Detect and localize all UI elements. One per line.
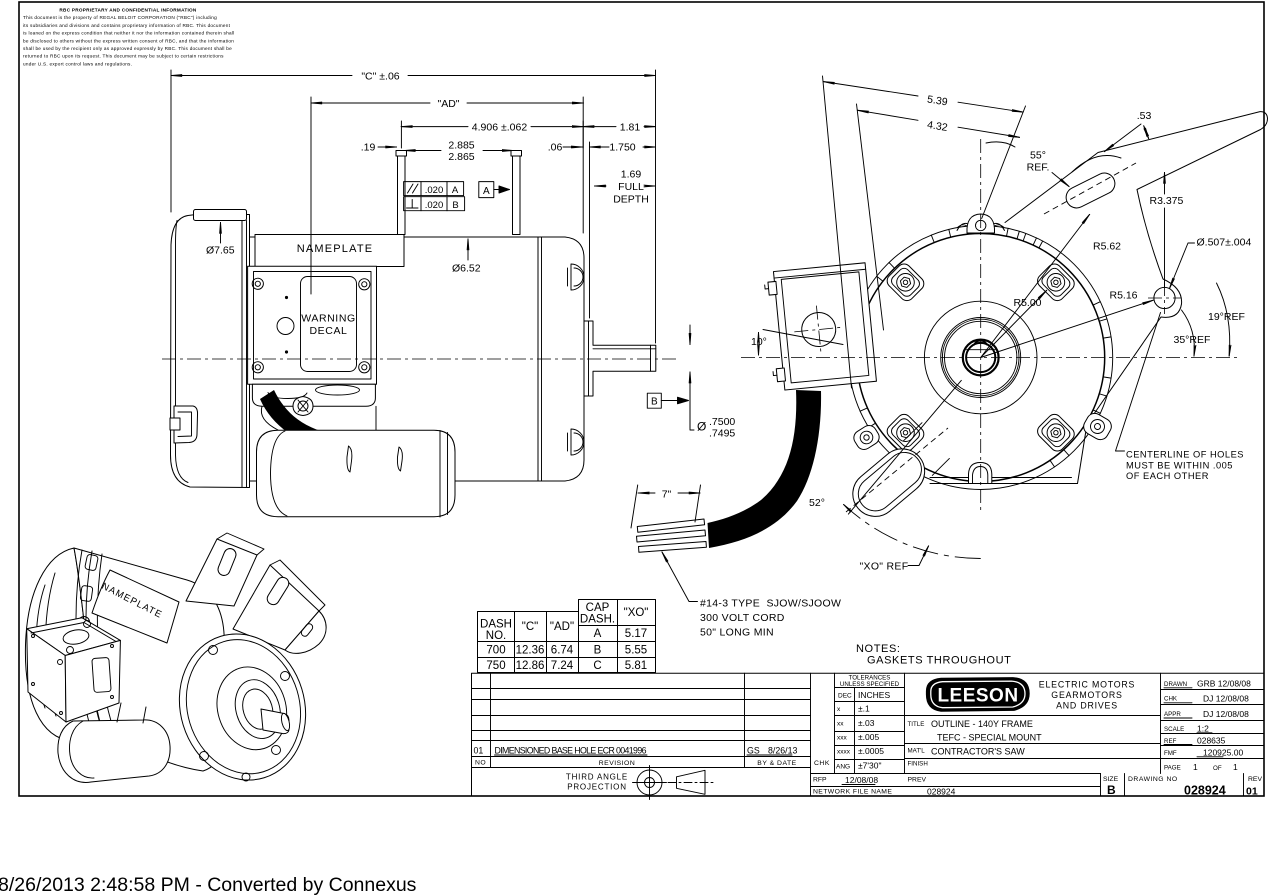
svg-text:55°: 55° [1030, 150, 1046, 162]
svg-text:.7500: .7500 [709, 416, 735, 428]
svg-text:be disclosed to others without: be disclosed to others without the expre… [23, 38, 234, 43]
svg-text:120925.00: 120925.00 [1203, 748, 1243, 758]
svg-text:TEFC - SPECIAL MOUNT: TEFC - SPECIAL MOUNT [937, 733, 1042, 743]
svg-text:300 VOLT CORD: 300 VOLT CORD [700, 612, 785, 624]
svg-text:028924: 028924 [927, 787, 956, 797]
svg-text:BY & DATE: BY & DATE [757, 760, 796, 767]
svg-text:xxx: xxx [837, 735, 848, 742]
svg-text:returned to RBC upon its reque: returned to RBC upon its request. This d… [23, 54, 224, 59]
svg-text:Ø7.65: Ø7.65 [206, 245, 235, 257]
svg-text:NO.: NO. [486, 630, 506, 642]
svg-text:DJ 12/08/08: DJ 12/08/08 [1203, 709, 1249, 719]
svg-text:B: B [594, 645, 602, 657]
svg-text:1.81: 1.81 [620, 122, 641, 134]
svg-text:.7495: .7495 [709, 428, 735, 440]
svg-text:REV: REV [1248, 776, 1262, 783]
svg-text:5.81: 5.81 [625, 660, 647, 672]
svg-text:01: 01 [1246, 786, 1258, 798]
svg-text:"C" ±.06: "C" ±.06 [361, 71, 399, 83]
svg-text:750: 750 [486, 660, 505, 672]
svg-text:028635: 028635 [1197, 736, 1226, 746]
svg-text:TITLE: TITLE [908, 721, 925, 728]
svg-text:Ø: Ø [697, 420, 706, 434]
svg-text:1: 1 [1233, 762, 1238, 772]
svg-text:C: C [593, 660, 601, 672]
svg-text:A: A [483, 186, 490, 197]
svg-text:DEC: DEC [838, 693, 852, 700]
svg-text:"C": "C" [522, 621, 538, 633]
svg-text:GEARMOTORS: GEARMOTORS [1051, 690, 1122, 700]
svg-text:DJ 12/08/08: DJ 12/08/08 [1203, 694, 1249, 704]
svg-text:OF EACH OTHER: OF EACH OTHER [1126, 471, 1209, 481]
svg-text:GS: GS [747, 746, 760, 756]
svg-text:12.36: 12.36 [516, 645, 545, 657]
svg-text:A: A [594, 628, 602, 640]
svg-text:NETWORK FILE NAME: NETWORK FILE NAME [813, 789, 892, 796]
svg-text:A: A [452, 185, 459, 196]
svg-text:6.74: 6.74 [551, 645, 574, 657]
svg-text:.53: .53 [1137, 110, 1152, 122]
svg-text:.06: .06 [548, 141, 563, 153]
svg-text:REVISION: REVISION [599, 760, 635, 767]
svg-text:MUST BE WITHIN .005: MUST BE WITHIN .005 [1126, 460, 1233, 470]
svg-text:DECAL: DECAL [309, 325, 347, 337]
svg-text:12.86: 12.86 [516, 660, 545, 672]
svg-text:R5.00: R5.00 [1014, 297, 1042, 309]
svg-text:1: 1 [1193, 762, 1198, 772]
svg-text:"XO": "XO" [624, 607, 649, 619]
svg-text:NAMEPLATE: NAMEPLATE [297, 243, 374, 255]
svg-text:DRAWN: DRAWN [1164, 681, 1187, 688]
svg-text:under U.S. export control laws: under U.S. export control laws and regul… [23, 61, 132, 66]
svg-text:NO: NO [475, 760, 486, 767]
svg-text:xx: xx [837, 721, 844, 728]
svg-text:#14-3 TYPE SJOW/SJOOW: #14-3 TYPE SJOW/SJOOW [700, 598, 841, 610]
svg-text:FULL: FULL [618, 181, 644, 193]
svg-text:LEESON: LEESON [937, 686, 1018, 707]
svg-text:Ø6.52: Ø6.52 [452, 263, 481, 275]
svg-text:RBC PROPRIETARY AND CONFIDENTI: RBC PROPRIETARY AND CONFIDENTIAL INFORMA… [59, 8, 196, 13]
svg-text:FINISH: FINISH [908, 761, 928, 768]
svg-text:"AD": "AD" [550, 621, 574, 633]
svg-text:35°REF: 35°REF [1174, 334, 1211, 346]
svg-text:B: B [1107, 783, 1116, 797]
svg-text:7": 7" [662, 489, 672, 501]
svg-text:OF: OF [1213, 765, 1222, 772]
svg-text:CAP: CAP [586, 602, 610, 614]
svg-text:±.005: ±.005 [858, 732, 879, 742]
svg-text:ANG: ANG [836, 764, 850, 771]
svg-text:50" LONG MIN: 50" LONG MIN [700, 627, 774, 639]
svg-text:R5.16: R5.16 [1110, 290, 1138, 302]
svg-text:REF: REF [1164, 738, 1177, 745]
svg-text:2.885: 2.885 [448, 140, 474, 152]
svg-text:APPR: APPR [1164, 711, 1181, 718]
svg-text:DASH.: DASH. [580, 614, 615, 626]
svg-text:GRB 12/08/08: GRB 12/08/08 [1197, 679, 1251, 689]
svg-text:FMF: FMF [1164, 750, 1177, 757]
svg-text:1.750: 1.750 [609, 141, 635, 153]
svg-text:DIMENSIONED BASE HOLE ECR 0041: DIMENSIONED BASE HOLE ECR 0041996 [495, 746, 647, 756]
svg-text:WARNING: WARNING [301, 313, 356, 325]
svg-text:028924: 028924 [1184, 784, 1226, 798]
svg-text:CONTRACTOR'S SAW: CONTRACTOR'S SAW [931, 747, 1025, 757]
svg-text:MAT'L: MAT'L [908, 748, 926, 755]
svg-text:1.69: 1.69 [621, 169, 642, 181]
svg-text:PROJECTION: PROJECTION [567, 783, 627, 792]
svg-text:AND DRIVES: AND DRIVES [1056, 701, 1118, 711]
svg-text:B: B [452, 200, 458, 211]
svg-text:5.17: 5.17 [625, 628, 647, 640]
svg-text:its subsidiaries and divisions: its subsidiaries and divisions and conta… [23, 23, 231, 28]
svg-text:B: B [651, 397, 658, 408]
svg-text:This document is the property: This document is the property of REGAL B… [23, 15, 217, 20]
svg-text:52°: 52° [809, 497, 825, 509]
svg-text:CHK: CHK [1164, 696, 1178, 703]
svg-text:.020: .020 [425, 185, 444, 196]
svg-text:±.1: ±.1 [858, 704, 870, 714]
svg-text:"XO" REF: "XO" REF [860, 561, 909, 573]
svg-text:8/26/13: 8/26/13 [768, 746, 797, 756]
svg-text:OUTLINE - 140Y FRAME: OUTLINE - 140Y FRAME [931, 719, 1033, 729]
svg-text:700: 700 [486, 645, 505, 657]
svg-text:R5.62: R5.62 [1093, 241, 1121, 253]
svg-text:UNLESS SPECIFIED: UNLESS SPECIFIED [840, 681, 900, 688]
svg-text:is loaned on the express condi: is loaned on the express condition that … [23, 31, 234, 36]
svg-text:xxxx: xxxx [837, 749, 851, 756]
svg-text:Ø.507±.004: Ø.507±.004 [1197, 237, 1252, 249]
svg-text:GASKETS THROUGHOUT: GASKETS THROUGHOUT [867, 655, 1011, 667]
svg-text:DRAWING NO: DRAWING NO [1128, 776, 1178, 783]
svg-text:CHK: CHK [814, 760, 830, 767]
svg-text:SCALE: SCALE [1164, 726, 1184, 733]
svg-text:.020: .020 [425, 200, 444, 211]
svg-text:CENTERLINE OF HOLES: CENTERLINE OF HOLES [1126, 450, 1244, 460]
svg-text:PREV: PREV [908, 777, 927, 784]
svg-text:THIRD ANGLE: THIRD ANGLE [566, 773, 628, 782]
svg-text:8/26/2013 2:48:58 PM - Convert: 8/26/2013 2:48:58 PM - Converted by Conn… [0, 874, 417, 896]
svg-text:shall be used by the recipient: shall be used by the recipient only as a… [23, 46, 232, 51]
svg-text:7.24: 7.24 [551, 660, 574, 672]
svg-text:1:2: 1:2 [1197, 724, 1209, 734]
svg-text:DEPTH: DEPTH [613, 194, 649, 206]
svg-text:ELECTRIC MOTORS: ELECTRIC MOTORS [1039, 680, 1135, 690]
svg-text:±7'30": ±7'30" [858, 761, 882, 771]
svg-text:±.0005: ±.0005 [858, 746, 884, 756]
svg-text:2.865: 2.865 [448, 151, 474, 163]
svg-text:±.03: ±.03 [858, 718, 875, 728]
svg-text:NOTES:: NOTES: [856, 643, 901, 655]
svg-text:RFP: RFP [813, 777, 827, 784]
svg-text:12/08/08: 12/08/08 [845, 775, 878, 785]
svg-text:DASH: DASH [480, 619, 512, 631]
svg-text:PAGE: PAGE [1164, 765, 1181, 772]
svg-text:5.55: 5.55 [625, 645, 647, 657]
svg-text:"AD": "AD" [437, 98, 459, 110]
svg-text:R3.375: R3.375 [1150, 195, 1184, 207]
svg-text:REF.: REF. [1027, 162, 1050, 174]
svg-text:01: 01 [474, 746, 484, 756]
svg-text:.19: .19 [361, 141, 376, 153]
svg-text:4.906 ±.062: 4.906 ±.062 [472, 122, 528, 134]
svg-text:INCHES: INCHES [858, 690, 890, 700]
